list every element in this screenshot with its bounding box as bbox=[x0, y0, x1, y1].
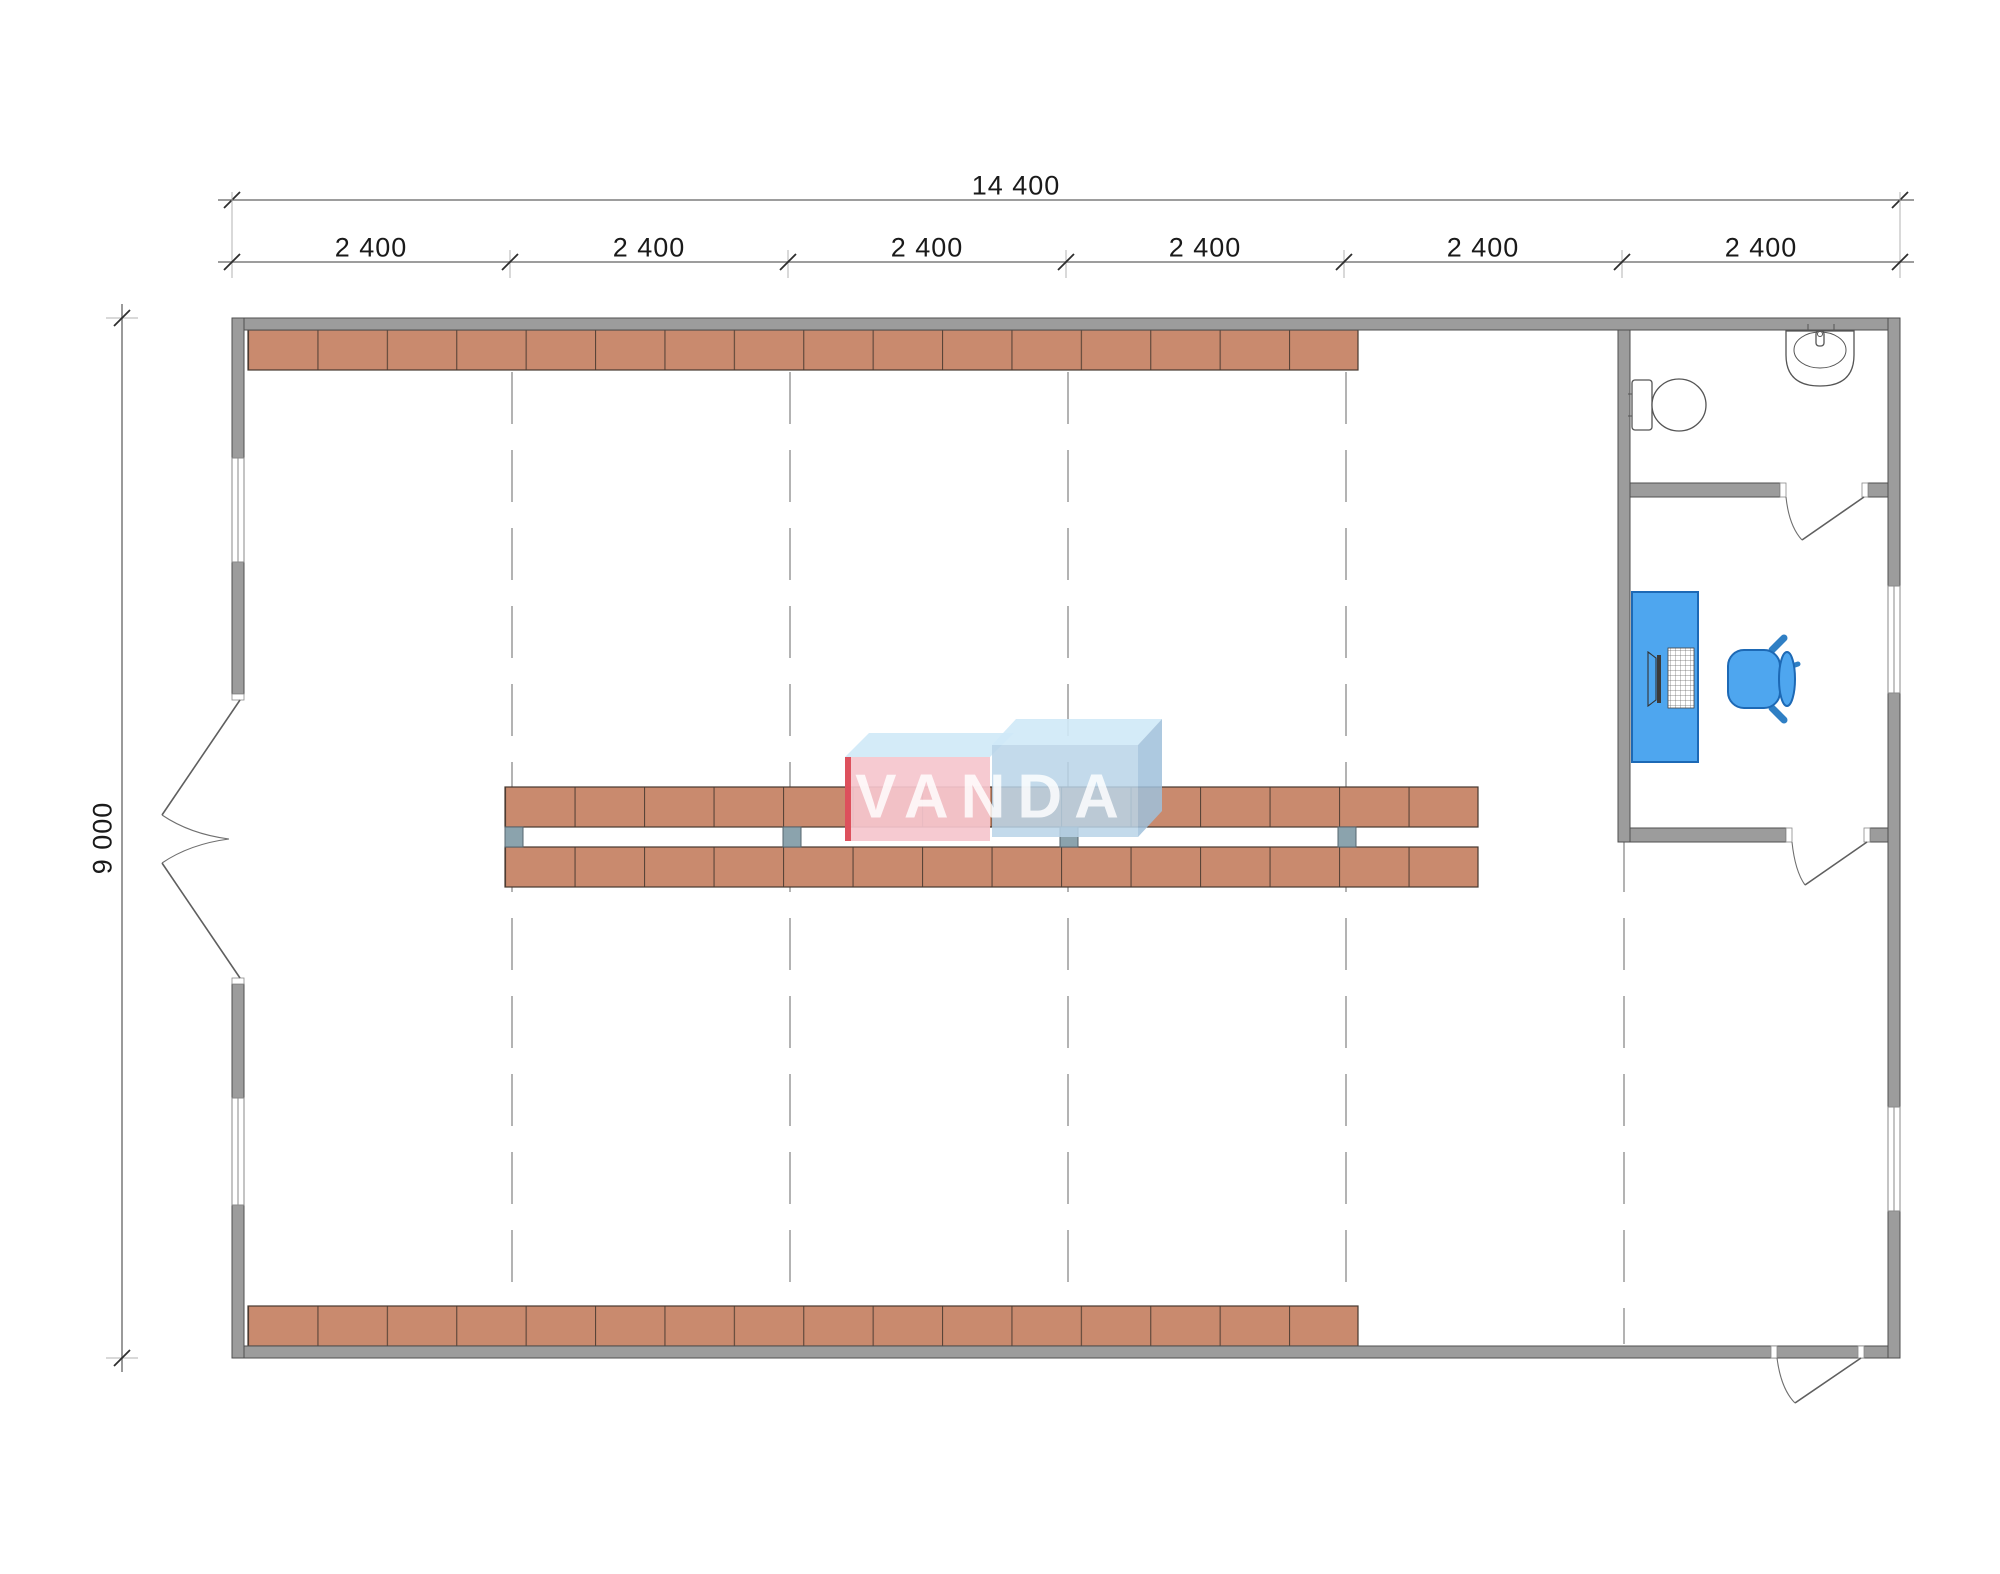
dimension-segment: 2 400 bbox=[891, 233, 964, 264]
toilet-tank bbox=[1632, 380, 1652, 430]
rack-post bbox=[1338, 827, 1356, 847]
dimension-segment: 2 400 bbox=[335, 233, 408, 264]
window-right-upper bbox=[1888, 586, 1900, 693]
segment-dimension-line bbox=[218, 192, 1914, 278]
logo-box-top-right bbox=[992, 719, 1162, 745]
dimension-total-height: 9 000 bbox=[88, 802, 119, 875]
office-partition-wall bbox=[1630, 828, 1786, 842]
exterior-wall-bottom bbox=[232, 1346, 1900, 1358]
chair-armrest bbox=[1772, 708, 1784, 720]
dimension-segment: 2 400 bbox=[1169, 233, 1242, 264]
exterior-wall-left bbox=[232, 318, 244, 458]
wall-shelf-top bbox=[248, 330, 1358, 370]
entrance-double-door bbox=[162, 694, 244, 984]
exterior-wall-left bbox=[232, 562, 244, 694]
logo-box-top-left bbox=[845, 733, 1014, 757]
wall-shelf-bottom bbox=[248, 1306, 1358, 1346]
top-dimension-line bbox=[218, 192, 1914, 208]
center-rack-lower bbox=[505, 847, 1478, 887]
window-right-lower bbox=[1888, 1107, 1900, 1211]
office-partition-stub bbox=[1870, 828, 1888, 842]
floor-plan-canvas: 14 400 2 400 2 400 2 400 2 400 2 400 2 4… bbox=[0, 0, 2000, 1574]
dimension-segment: 2 400 bbox=[1725, 233, 1798, 264]
dimension-segment: 2 400 bbox=[613, 233, 686, 264]
logo-red-edge bbox=[845, 757, 851, 841]
exterior-wall-right bbox=[1888, 693, 1900, 1107]
office-door bbox=[1786, 828, 1870, 885]
rack-post bbox=[505, 827, 523, 847]
exterior-wall-top bbox=[232, 318, 1900, 330]
bathroom-door bbox=[1780, 483, 1868, 540]
toilet bbox=[1628, 379, 1706, 431]
logo-text: VANDA bbox=[855, 762, 1131, 833]
exterior-wall-right bbox=[1888, 318, 1900, 586]
keyboard-icon bbox=[1668, 648, 1694, 708]
window-left-lower bbox=[232, 1098, 244, 1205]
rack-post bbox=[783, 827, 801, 847]
window-left-upper bbox=[232, 458, 244, 562]
sink bbox=[1786, 324, 1854, 386]
dimension-segment: 2 400 bbox=[1447, 233, 1520, 264]
partition-wall-vertical bbox=[1618, 330, 1630, 842]
exterior-wall-left bbox=[232, 984, 244, 1098]
chair-backrest bbox=[1779, 652, 1795, 706]
chair-armrest bbox=[1772, 638, 1784, 650]
office-desk bbox=[1632, 592, 1698, 762]
exterior-wall-left bbox=[232, 1205, 244, 1358]
monitor-screen bbox=[1657, 655, 1661, 703]
bathroom-partition-wall bbox=[1630, 483, 1780, 497]
exterior-wall-right bbox=[1888, 1211, 1900, 1358]
chair-seat bbox=[1728, 650, 1780, 708]
dimension-total-width: 14 400 bbox=[972, 171, 1061, 202]
toilet-bowl bbox=[1652, 379, 1706, 431]
bathroom-partition-stub bbox=[1868, 483, 1888, 497]
office-chair bbox=[1728, 638, 1798, 720]
